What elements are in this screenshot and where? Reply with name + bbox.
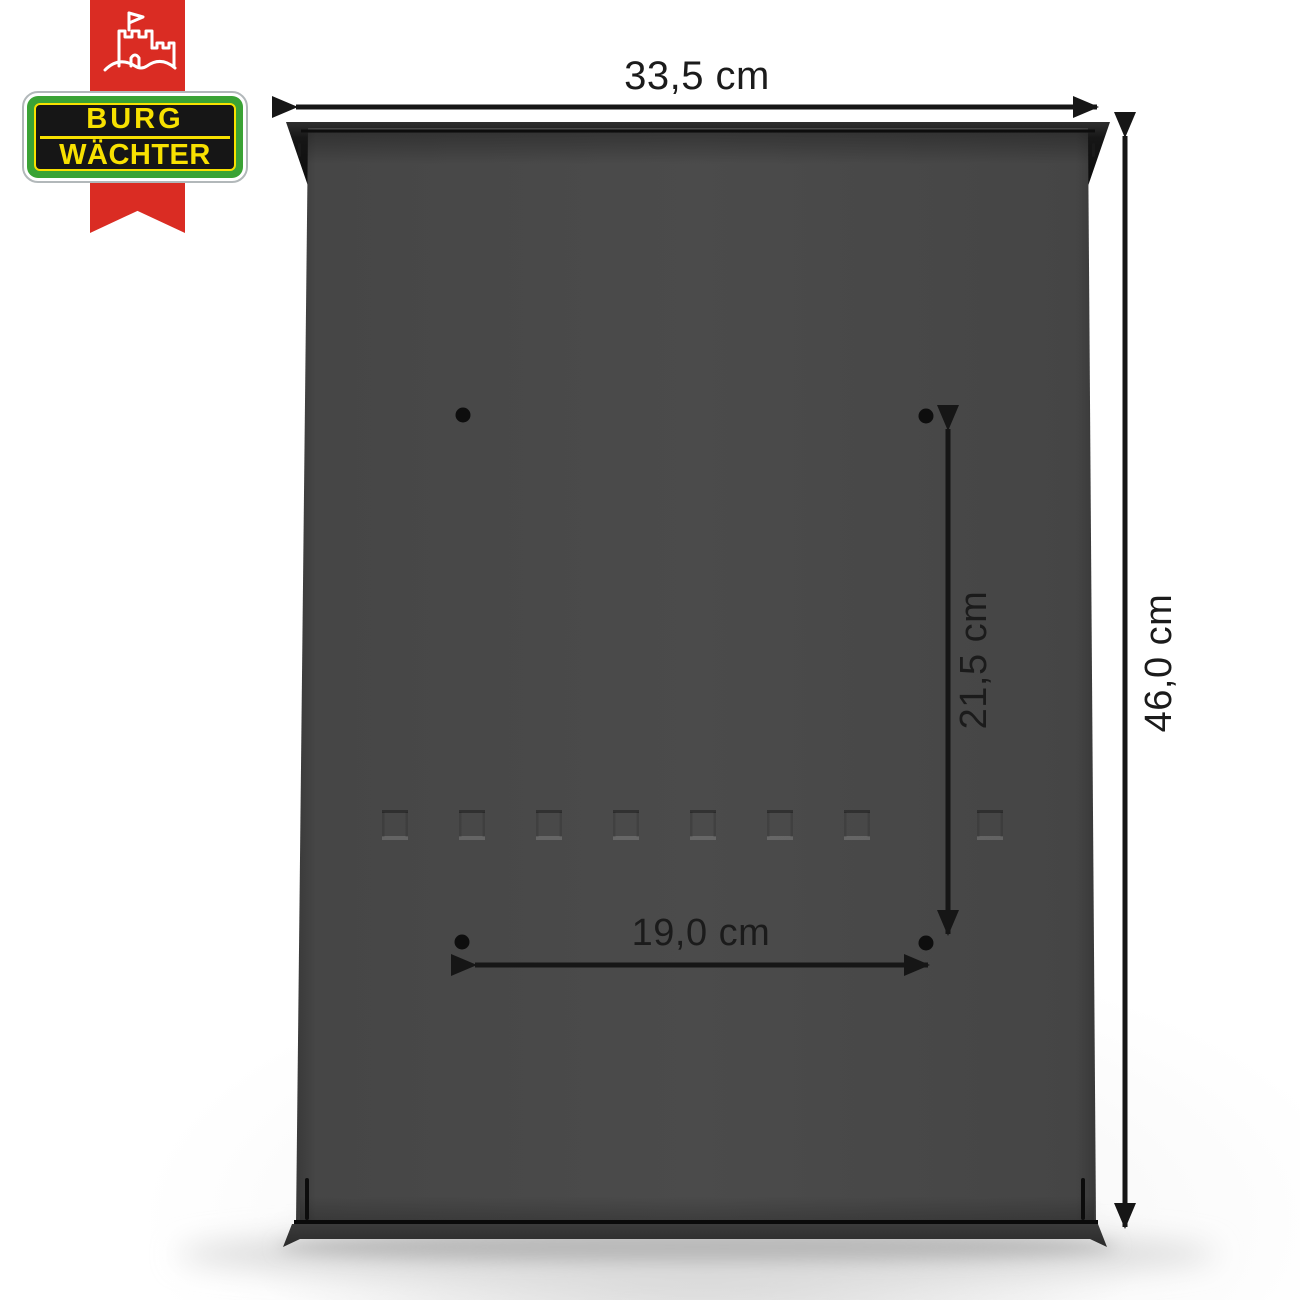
bottom-left-slit	[305, 1178, 309, 1220]
brand-name-line1: BURG	[86, 105, 183, 133]
top-left-screw-slot	[298, 143, 301, 157]
badge-black-panel: BURG WÄCHTER	[34, 103, 236, 171]
product-dimension-image: 33,5 cm 46,0 cm 21,5 cm 19,0 cm	[0, 0, 1300, 1300]
mounting-hole-bottom-right	[919, 936, 934, 951]
top-right-screw-slot	[1092, 143, 1095, 157]
bottom-fold-shading	[300, 1196, 1094, 1222]
mounting-hole-bottom-left	[455, 935, 470, 950]
height-dimension-label: 46,0 cm	[1137, 563, 1181, 763]
under-lid-shading	[307, 132, 1089, 164]
hole-spacing-horizontal-label: 19,0 cm	[551, 911, 851, 955]
hole-spacing-vertical-label: 21,5 cm	[952, 560, 996, 760]
mailbox-rear-illustration	[0, 0, 1300, 1300]
mounting-hole-top-left	[456, 408, 471, 423]
mounting-hole-top-right	[919, 409, 934, 424]
width-dimension-label: 33,5 cm	[497, 54, 897, 98]
badge-green-frame: BURG WÄCHTER	[27, 96, 243, 178]
bottom-right-slit	[1081, 1178, 1085, 1220]
castle-icon	[95, 4, 180, 82]
brand-name-line2: WÄCHTER	[59, 141, 211, 169]
brand-badge: BURG WÄCHTER	[22, 91, 248, 183]
